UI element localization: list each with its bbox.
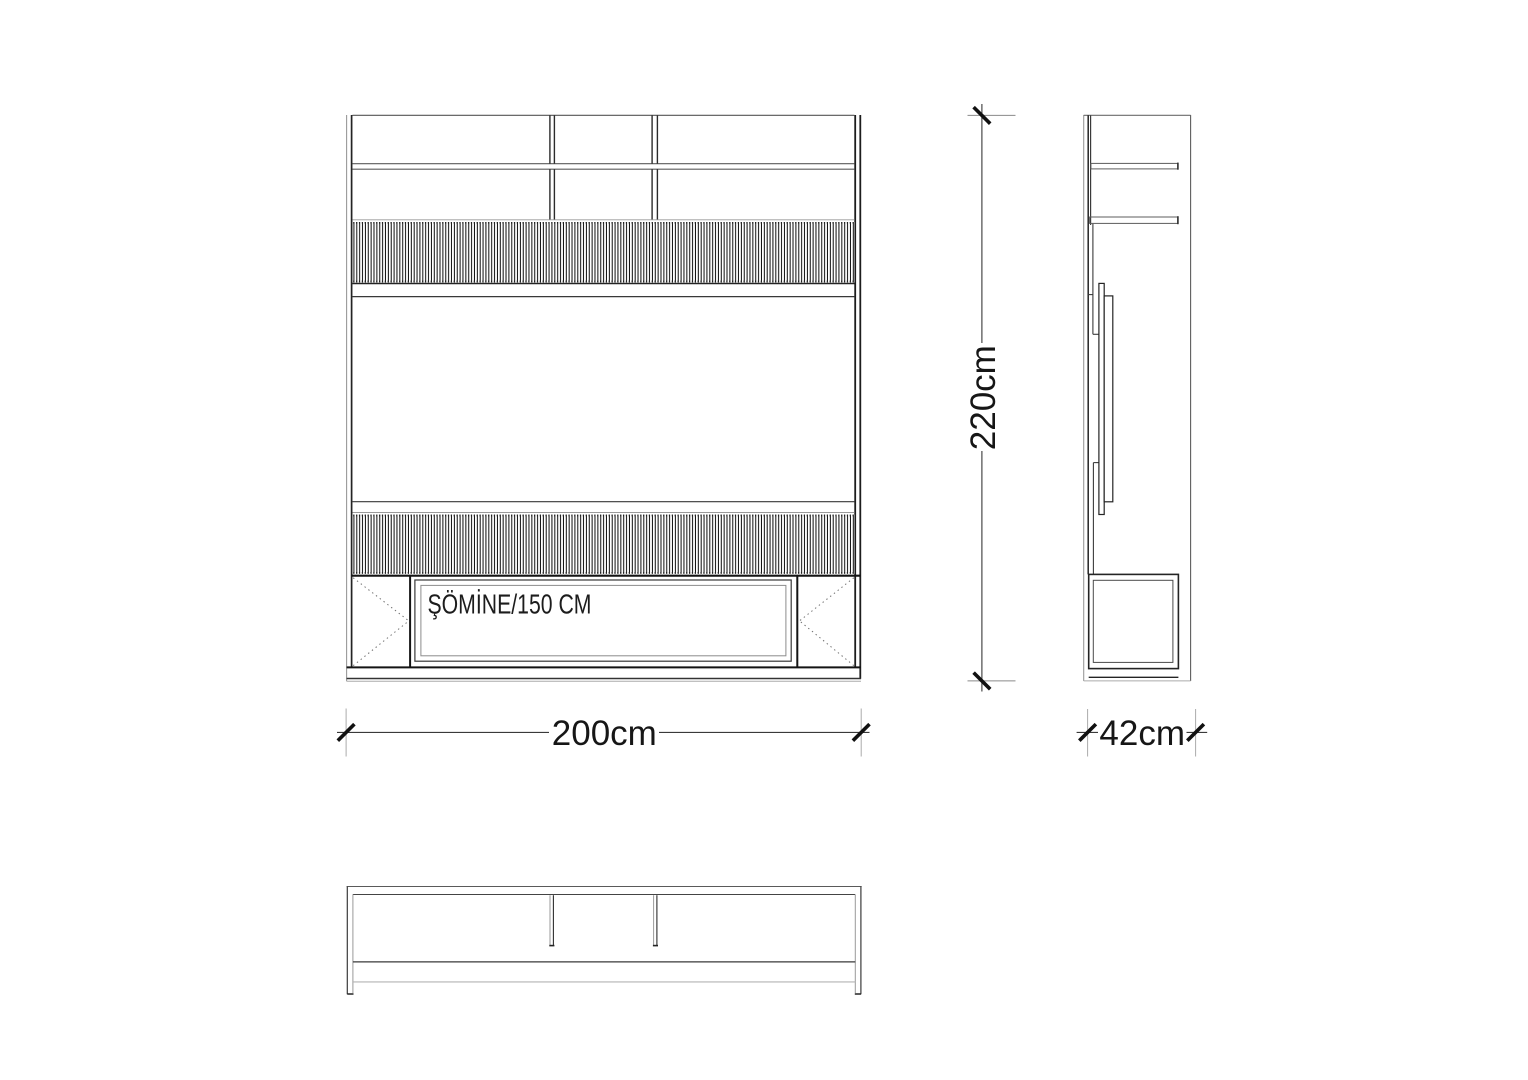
svg-text:42cm: 42cm [1099,714,1185,753]
svg-text:200cm: 200cm [552,714,657,753]
svg-text:ŞÖMİNE/150 CM: ŞÖMİNE/150 CM [428,589,592,620]
svg-text:220cm: 220cm [964,345,1003,450]
